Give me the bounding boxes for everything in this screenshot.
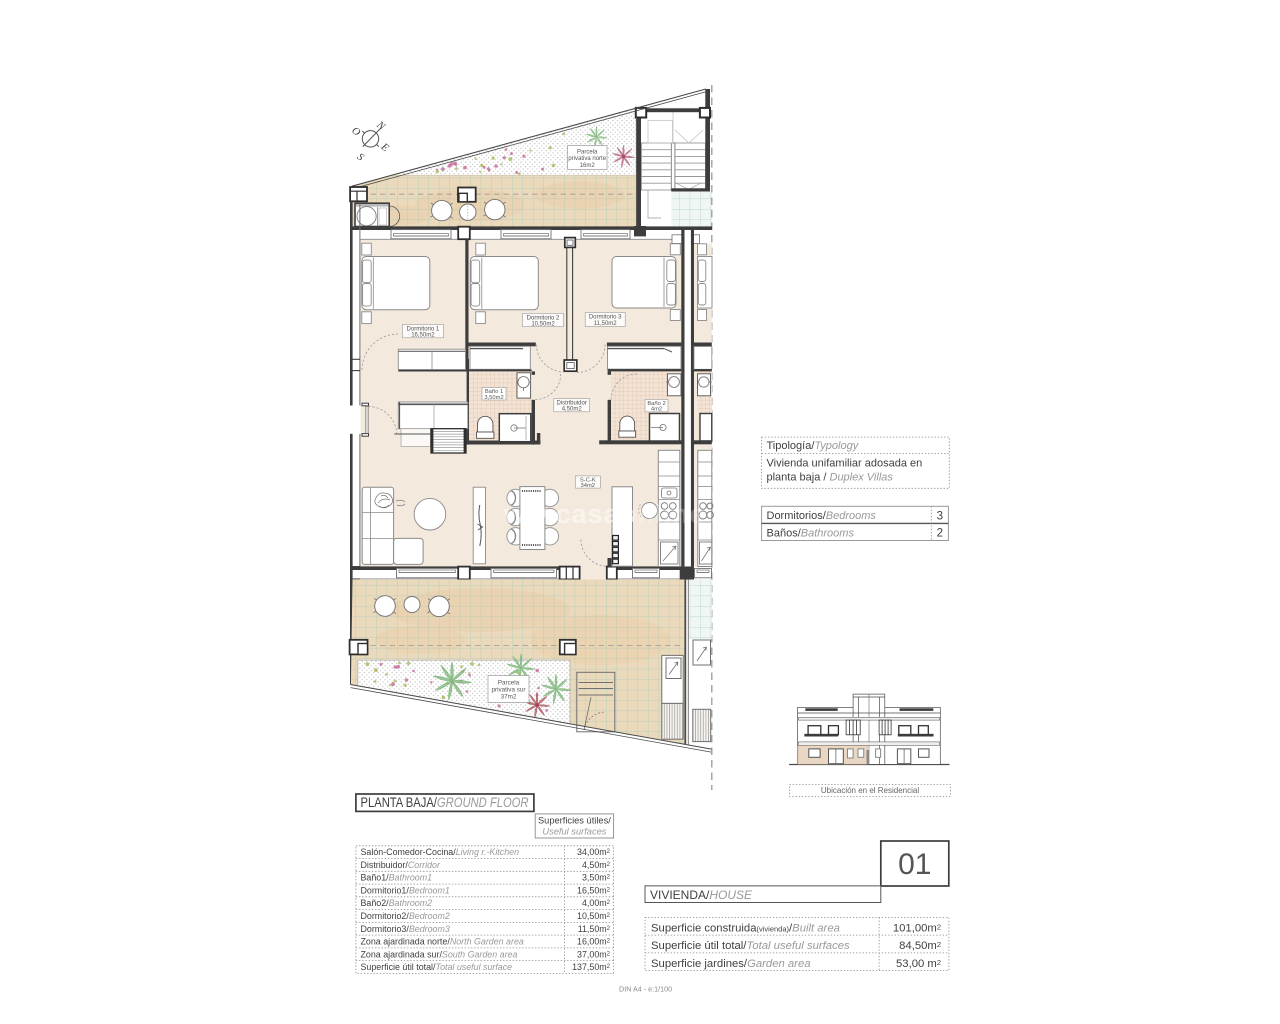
svg-text:Distribuidor: Distribuidor — [557, 400, 587, 406]
svg-text:4m2: 4m2 — [651, 407, 662, 413]
svg-text:VIVIENDA/HOUSE: VIVIENDA/HOUSE — [650, 888, 753, 902]
svg-text:Dormitorio3/Bedroom3: Dormitorio3/Bedroom3 — [361, 924, 450, 934]
svg-text:4,50m2: 4,50m2 — [582, 860, 611, 870]
svg-text:DIN A4 - e:1/100: DIN A4 - e:1/100 — [619, 985, 672, 994]
svg-text:2: 2 — [937, 528, 943, 540]
svg-text:01: 01 — [898, 848, 931, 881]
svg-text:Dormitorios/Bedrooms: Dormitorios/Bedrooms — [767, 510, 877, 522]
svg-text:Tipología/Typology: Tipología/Typology — [767, 440, 860, 452]
svg-text:ww.casas: ww.casas — [503, 499, 636, 529]
svg-text:84,50m2: 84,50m2 — [899, 940, 941, 952]
svg-text:Parcela: Parcela — [577, 149, 598, 155]
svg-text:Dormitorio 2: Dormitorio 2 — [527, 315, 560, 321]
svg-text:Useful surfaces: Useful surfaces — [542, 826, 606, 836]
svg-text:10,50m2: 10,50m2 — [531, 322, 555, 328]
svg-text:37,00m2: 37,00m2 — [577, 949, 611, 959]
svg-text:privativa sur: privativa sur — [492, 687, 526, 694]
svg-text:16,50m2: 16,50m2 — [577, 886, 611, 896]
svg-text:3,50m2: 3,50m2 — [582, 873, 611, 883]
svg-text:Parcela: Parcela — [498, 680, 520, 687]
svg-text:16,50m2: 16,50m2 — [411, 333, 435, 339]
svg-text:Baños/Bathrooms: Baños/Bathrooms — [767, 527, 855, 539]
svg-text:11,50m2: 11,50m2 — [578, 924, 611, 934]
svg-text:Salón-Comedor-Cocina/Living r.: Salón-Comedor-Cocina/Living r.-Kitchen — [361, 847, 520, 857]
svg-text:34m2: 34m2 — [581, 483, 596, 489]
svg-text:Baño2/Bathroom2: Baño2/Bathroom2 — [361, 898, 433, 908]
svg-text:37m2: 37m2 — [501, 694, 517, 701]
svg-text:53,00 m2: 53,00 m2 — [896, 958, 941, 970]
svg-text:online: online — [620, 499, 706, 529]
svg-text:16m2: 16m2 — [580, 163, 596, 169]
svg-text:Vivienda unifamiliar adosada e: Vivienda unifamiliar adosada en — [767, 458, 923, 470]
svg-text:4,00m2: 4,00m2 — [582, 898, 611, 908]
svg-text:Zona ajardinada norte/North Ga: Zona ajardinada norte/North Garden area — [361, 937, 524, 947]
svg-text:Dormitorio 3: Dormitorio 3 — [589, 315, 622, 321]
svg-text:10,50m2: 10,50m2 — [577, 911, 611, 921]
svg-text:Dormitorio2/Bedroom2: Dormitorio2/Bedroom2 — [361, 911, 450, 921]
svg-text:137,50m2: 137,50m2 — [572, 962, 611, 972]
svg-text:16,00m2: 16,00m2 — [577, 937, 611, 947]
svg-text:Superficie jardines/Garden are: Superficie jardines/Garden area — [651, 958, 811, 970]
svg-text:3: 3 — [937, 510, 943, 522]
svg-text:11,50m2: 11,50m2 — [594, 321, 618, 327]
svg-text:101,00m2: 101,00m2 — [893, 922, 941, 934]
svg-text:Superficie útil total/Total us: Superficie útil total/Total useful surfa… — [361, 962, 513, 972]
svg-text:PLANTA BAJA/GROUND FLOOR: PLANTA BAJA/GROUND FLOOR — [361, 795, 529, 810]
svg-text:Zona ajardinada sur/South Gard: Zona ajardinada sur/South Garden area — [361, 949, 518, 959]
svg-text:Superficie construida(vivienda: Superficie construida(vivienda)/Built ar… — [651, 923, 840, 935]
svg-text:4,50m2: 4,50m2 — [562, 407, 583, 413]
svg-text:Distribuidor/Corridor: Distribuidor/Corridor — [361, 860, 441, 870]
svg-text:Baño1/Bathroom1: Baño1/Bathroom1 — [361, 873, 433, 883]
svg-text:planta baja / Duplex Villas: planta baja / Duplex Villas — [767, 472, 894, 484]
svg-text:3,50m2: 3,50m2 — [484, 395, 503, 401]
svg-text:privativa norte: privativa norte — [568, 156, 606, 162]
svg-text:Superficies útiles/: Superficies útiles/ — [538, 816, 611, 826]
svg-text:Ubicación en el Residencial: Ubicación en el Residencial — [821, 786, 920, 795]
svg-text:34,00m2: 34,00m2 — [577, 847, 611, 857]
svg-text:Dormitorio 1: Dormitorio 1 — [407, 326, 440, 332]
svg-text:Superficie útil total/Total us: Superficie útil total/Total useful surfa… — [651, 940, 850, 952]
svg-text:Dormitorio1/Bedroom1: Dormitorio1/Bedroom1 — [361, 886, 450, 896]
